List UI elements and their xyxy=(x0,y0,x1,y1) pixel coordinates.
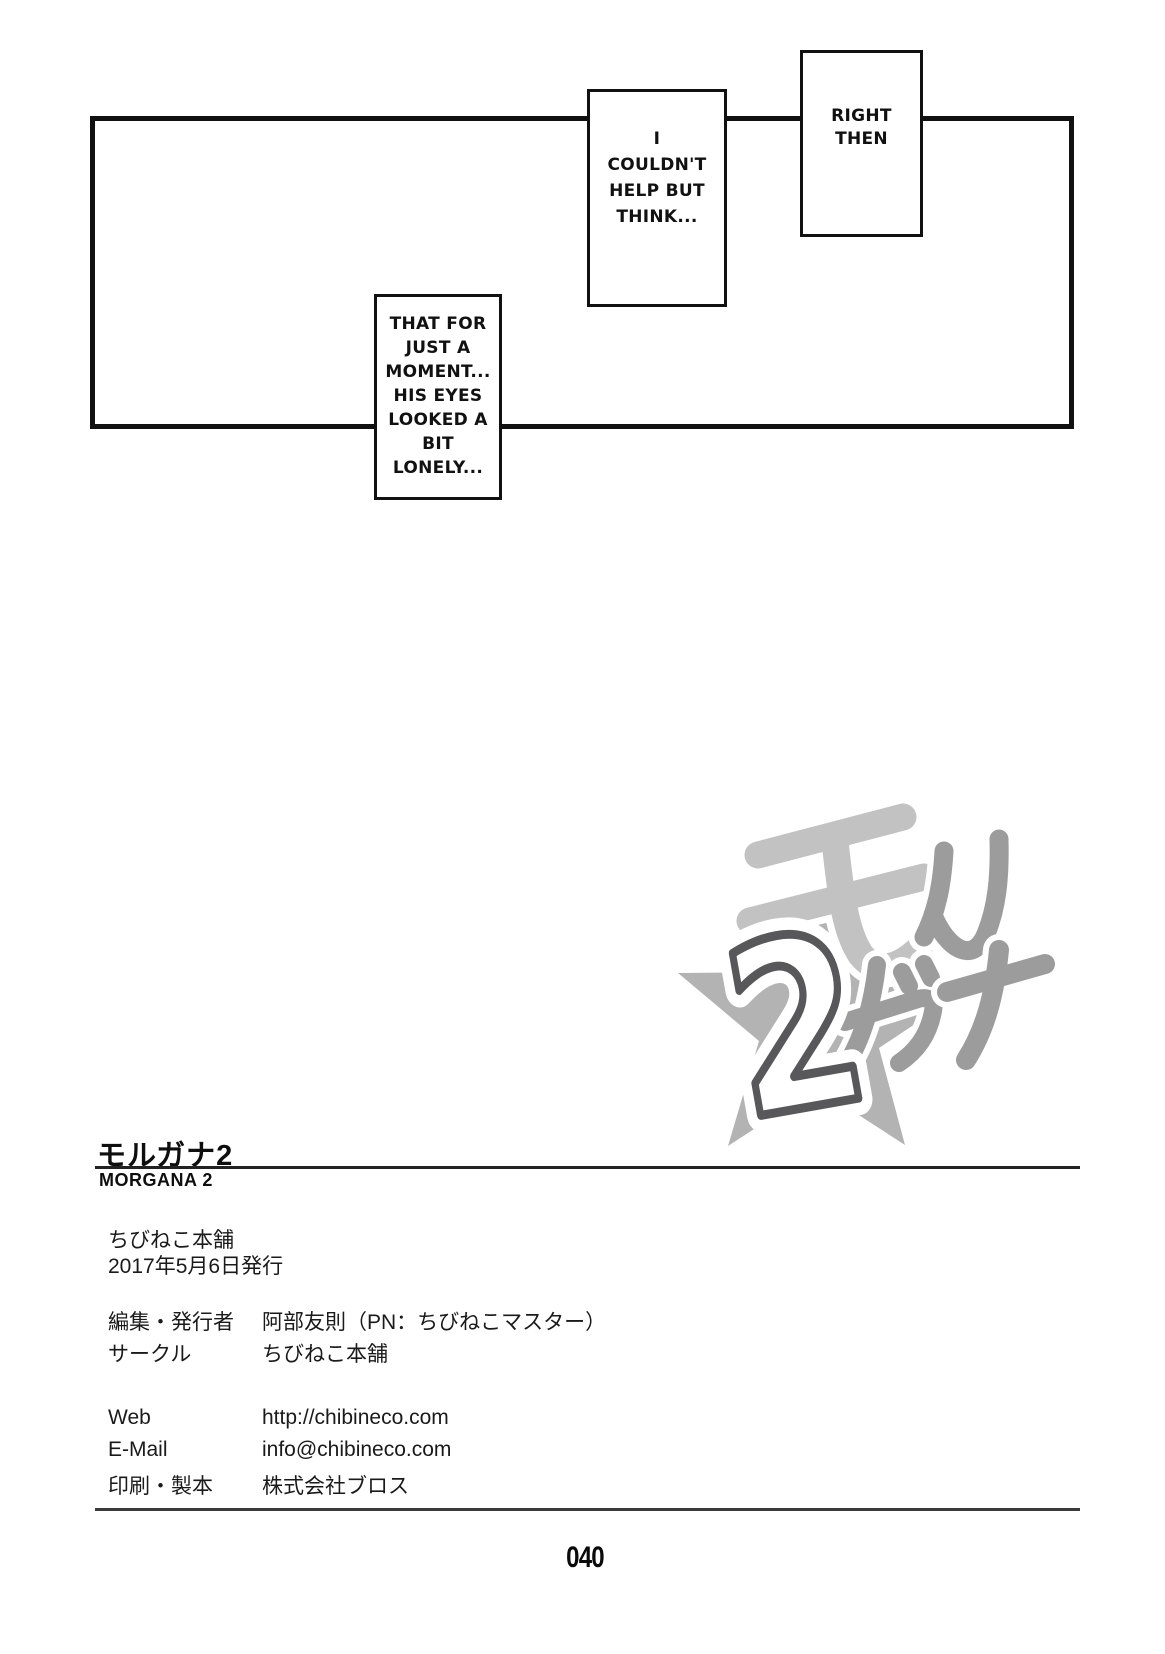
credit-value: 阿部友則（PN：ちびねこマスター） xyxy=(262,1311,606,1334)
caption-text-line: THAT FOR xyxy=(377,312,499,336)
credit-row-web: Webhttp://chibineco.com xyxy=(108,1406,449,1430)
credit-row-editor: 編集・発行者阿部友則（PN：ちびねこマスター） xyxy=(108,1306,606,1336)
credit-label: サークル xyxy=(108,1338,262,1368)
colophon-title-en: MORGANA 2 xyxy=(99,1170,213,1191)
morgana2-logo: 2 2 xyxy=(620,740,1100,1170)
credit-label: 編集・発行者 xyxy=(108,1306,262,1336)
credit-value: ちびねこ本舗 xyxy=(262,1343,388,1366)
caption-text-line: LOOKED A xyxy=(377,408,499,432)
comic-panel xyxy=(90,116,1074,429)
credit-row-printer: 印刷・製本株式会社ブロス xyxy=(108,1470,409,1500)
logo-kana-ru xyxy=(924,839,999,951)
credit-label: 印刷・製本 xyxy=(108,1470,262,1500)
caption-text-line: THEN xyxy=(803,128,920,151)
credit-row-email: E-Mailinfo@chibineco.com xyxy=(108,1438,451,1462)
page-number: 040 xyxy=(565,1541,605,1575)
caption-box-couldnt-help: I COULDN'T HELP BUT THINK... xyxy=(587,89,727,307)
credit-row-circle: サークルちびねこ本舗 xyxy=(108,1338,388,1368)
issue-date: 2017年5月6日発行 xyxy=(108,1250,283,1280)
credit-label: E-Mail xyxy=(108,1438,262,1462)
credit-value-url: http://chibineco.com xyxy=(262,1406,449,1429)
caption-text-line: BIT xyxy=(377,432,499,456)
credit-value: 株式会社ブロス xyxy=(262,1475,409,1498)
caption-text-line: LONELY... xyxy=(377,456,499,480)
credit-label: Web xyxy=(108,1406,262,1430)
caption-box-lonely-eyes: THAT FOR JUST A MOMENT... HIS EYES LOOKE… xyxy=(374,294,502,500)
caption-text-line: MOMENT... xyxy=(377,360,499,384)
footer-divider xyxy=(95,1508,1080,1511)
caption-text-line: HELP BUT xyxy=(590,178,724,204)
logo-kana-na xyxy=(947,950,1045,1060)
manga-colophon-page: RIGHT THEN I COULDN'T HELP BUT THINK... … xyxy=(0,0,1165,1654)
caption-text-line: RIGHT xyxy=(803,105,920,128)
caption-box-right-then: RIGHT THEN xyxy=(800,50,923,237)
caption-text-line: COULDN'T xyxy=(590,152,724,178)
caption-text-line: JUST A xyxy=(377,336,499,360)
caption-text-line: HIS EYES xyxy=(377,384,499,408)
caption-text-line: THINK... xyxy=(590,204,724,230)
credit-value-email: info@chibineco.com xyxy=(262,1438,451,1461)
caption-text-line: I xyxy=(590,126,724,152)
